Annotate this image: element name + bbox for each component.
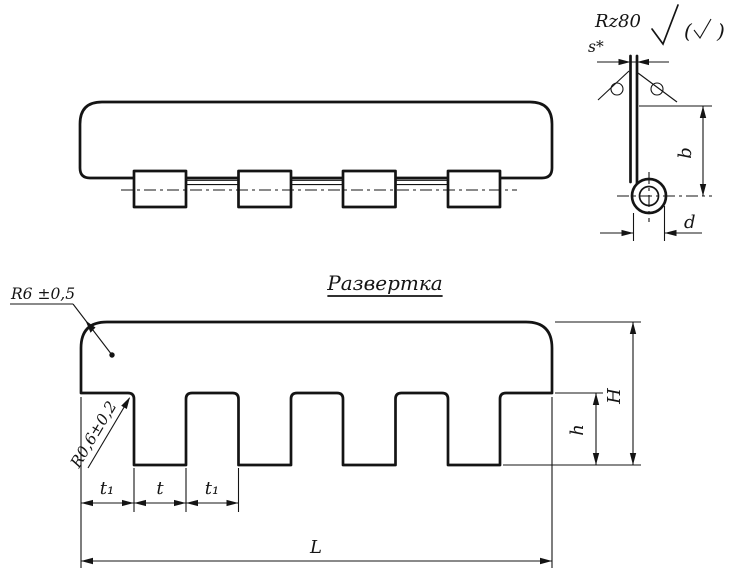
dimension-arrow [593,393,599,405]
roughness-check-small-icon [694,19,711,38]
knuckle-2 [239,171,292,207]
knuckle-4 [448,171,500,207]
dimension-arrow [700,184,706,196]
dimension-arrow [540,558,552,564]
dim-b: b [639,106,712,196]
curl-mark-left-icon [598,71,629,100]
dimension-arrow [665,230,677,236]
dimension-arrow [174,500,186,506]
dimension-arrow [630,322,636,334]
dim-label-L: L [309,537,322,558]
dim-label-b: b [675,147,696,159]
hinge-leaf-outline [80,102,552,178]
drawing-sheet: Rz80 ( ) s* [0,0,737,575]
roughness-check-icon [652,5,678,44]
paren-close: ) [716,19,725,43]
side-view: Rz80 ( ) s* [588,5,725,241]
dimension-arrow [134,500,146,506]
paren-open: ( [684,19,693,43]
development-outline [81,322,552,465]
dim-s: s* [588,38,669,65]
development-title: Развертка [326,271,442,295]
dim-label-t1-right: t₁ [205,478,219,499]
knuckle-3 [343,171,396,207]
dim-label-t: t [156,478,164,499]
dim-d: d [600,206,702,241]
dimension-arrow [630,453,636,465]
dim-h: h [567,393,599,465]
leader-arrow [121,397,130,409]
dimension-arrow [81,500,93,506]
radius-notch-label: R0,6±0,2 [66,398,120,472]
roughness-label: Rz80 [594,11,641,32]
dimension-arrow [593,453,599,465]
dim-label-s: s* [588,38,604,56]
dim-label-t1-left: t₁ [100,478,114,499]
dim-H: H [604,322,636,465]
dimension-arrow [619,59,631,65]
radius-corner-label: R6 ±0,5 [10,285,75,303]
curl-mark-right-icon [638,73,677,102]
rolled-edge-lines [186,180,448,184]
dim-label-H: H [604,388,625,405]
dim-label-h: h [567,424,588,436]
radius-notch-callout: R0,6±0,2 [66,397,130,472]
dimension-arrow [637,59,649,65]
dim-t-row: t₁ t t₁ [81,478,239,506]
dimension-arrow [81,558,93,564]
dimension-arrow [186,500,198,506]
development-view: Развертка R6 ±0,5 R0,6±0,2 [10,271,641,568]
dimension-arrow [227,500,239,506]
dimension-arrow [622,230,634,236]
technical-drawing: Rz80 ( ) s* [0,0,737,575]
dimension-arrow [700,106,706,118]
leader-dot [109,352,114,357]
dim-label-d: d [684,212,696,233]
knuckle-1 [134,171,186,207]
dim-L: L [81,537,552,564]
folded-view [80,102,552,207]
dimension-arrow [122,500,134,506]
